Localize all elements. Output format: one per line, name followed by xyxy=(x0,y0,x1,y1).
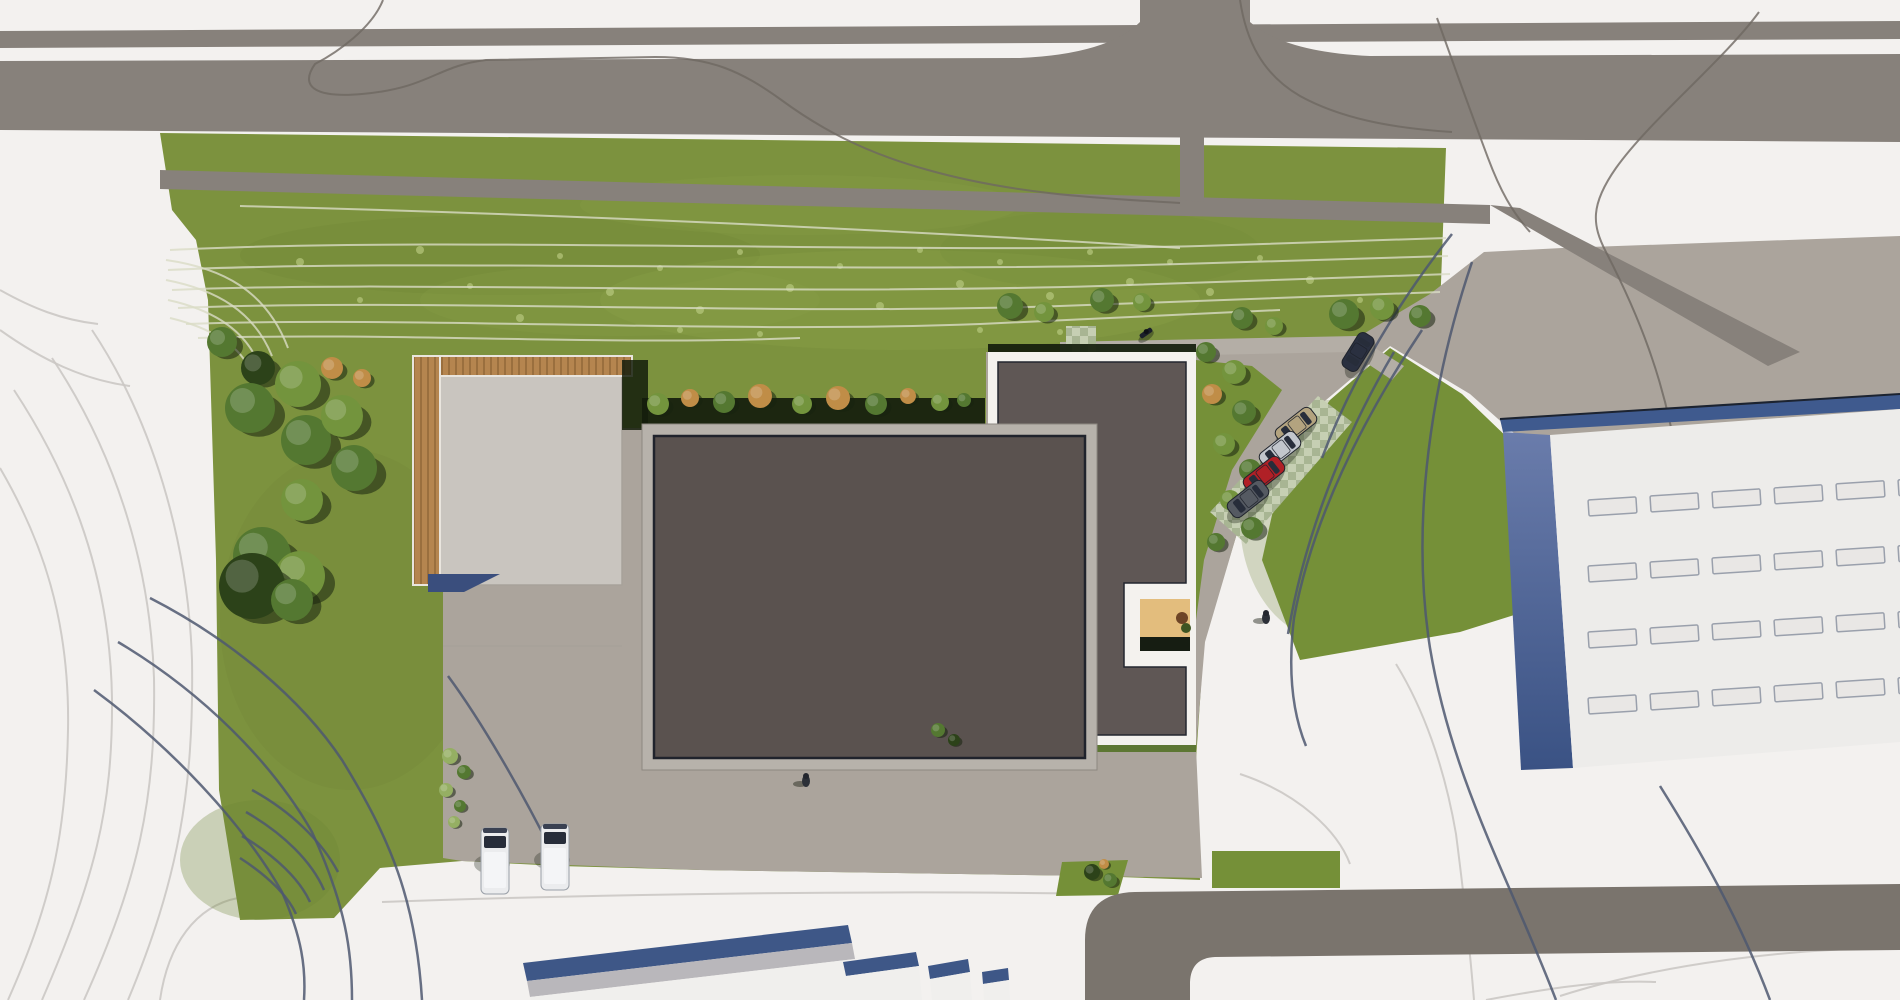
aerial-site-render xyxy=(0,0,1900,1000)
grass-patch-small-east xyxy=(1212,851,1340,888)
hedge-courtyard-east xyxy=(622,360,648,430)
meadow-speck xyxy=(977,327,983,333)
meadow-speck xyxy=(1046,292,1054,300)
tree-highlight xyxy=(455,801,461,807)
meadow-speck xyxy=(516,314,524,322)
tree-highlight xyxy=(932,724,939,731)
courtyard-slab xyxy=(440,376,622,585)
skylight xyxy=(1650,559,1699,578)
skylight xyxy=(1650,625,1699,644)
tree-highlight xyxy=(449,817,455,823)
tree-highlight xyxy=(1100,860,1105,865)
meadow-speck xyxy=(677,327,683,333)
tree-highlight xyxy=(226,560,259,593)
tree-highlight xyxy=(949,735,955,741)
tree-highlight xyxy=(958,394,965,401)
industrial-roof xyxy=(1550,409,1900,768)
notch-plant-leaf xyxy=(1181,623,1191,633)
meadow-speck xyxy=(416,246,424,254)
skylight xyxy=(1774,683,1823,702)
van-windshield xyxy=(484,836,506,848)
skylight xyxy=(1650,691,1699,710)
tree-highlight xyxy=(649,395,660,406)
meadow-speck xyxy=(557,253,563,259)
skylight xyxy=(1774,617,1823,636)
tree-highlight xyxy=(285,483,306,504)
tree-highlight xyxy=(1204,386,1214,396)
tree-highlight xyxy=(1104,874,1111,881)
meadow-speck xyxy=(786,284,794,292)
tree-highlight xyxy=(210,330,225,345)
tree-highlight xyxy=(715,393,726,404)
tree-highlight xyxy=(1036,304,1046,314)
skylight xyxy=(1836,481,1885,500)
meadow-speck xyxy=(997,259,1003,265)
main-roof xyxy=(654,436,1085,758)
tree-highlight xyxy=(440,784,447,791)
van-windshield xyxy=(544,832,566,844)
meadow-speck xyxy=(1306,276,1314,284)
skylight xyxy=(1588,497,1637,516)
skylight xyxy=(1588,695,1637,714)
skylight xyxy=(1836,547,1885,566)
meadow-speck xyxy=(757,331,763,337)
skylight xyxy=(1588,629,1637,648)
tree-highlight xyxy=(1092,290,1104,302)
render-viewport[interactable] xyxy=(0,0,1900,1000)
tree-highlight xyxy=(444,750,452,758)
tree-highlight xyxy=(1332,302,1347,317)
tree-highlight xyxy=(355,371,364,380)
tree-highlight xyxy=(1000,296,1013,309)
meadow-speck xyxy=(296,258,304,266)
tree-highlight xyxy=(1234,402,1246,414)
tree-highlight xyxy=(1209,535,1218,544)
person-head xyxy=(1263,610,1269,616)
grass-mottle xyxy=(180,800,340,920)
tree-highlight xyxy=(280,366,303,389)
road-access-stub xyxy=(1180,136,1204,202)
skylight xyxy=(1650,493,1699,512)
tree-highlight xyxy=(244,354,261,371)
tree-highlight xyxy=(1135,295,1144,304)
tree-highlight xyxy=(458,766,465,773)
tree-highlight xyxy=(1372,298,1384,310)
skylight xyxy=(1712,489,1761,508)
tree-highlight xyxy=(1267,319,1276,328)
tree-highlight xyxy=(275,583,296,604)
notch-plant xyxy=(1176,612,1188,624)
notch-deck-shadow xyxy=(1140,637,1190,651)
tree-highlight xyxy=(336,450,359,473)
timber-wall-north xyxy=(413,356,632,376)
tree-highlight xyxy=(750,386,762,398)
meadow-speck xyxy=(1057,329,1063,335)
tree-highlight xyxy=(1215,435,1226,446)
van-roof xyxy=(484,852,506,888)
tree-highlight xyxy=(933,395,942,404)
tree-highlight xyxy=(230,388,255,413)
industrial-building xyxy=(1500,394,1900,770)
tree-highlight xyxy=(1233,309,1244,320)
skylight xyxy=(1712,687,1761,706)
van-hood xyxy=(483,828,507,833)
tree-highlight xyxy=(828,388,840,400)
meadow-speck xyxy=(606,288,614,296)
tree-highlight xyxy=(683,391,692,400)
skylight xyxy=(1836,679,1885,698)
tree-highlight xyxy=(1241,461,1252,472)
meadow-speck xyxy=(1257,255,1263,261)
tree-highlight xyxy=(794,396,804,406)
tree-highlight xyxy=(286,420,311,445)
skylight xyxy=(1774,485,1823,504)
main-building xyxy=(642,424,1097,770)
van-roof xyxy=(544,848,566,884)
meadow-speck xyxy=(737,249,743,255)
timber-wall-west xyxy=(413,356,440,585)
tree-highlight xyxy=(325,399,346,420)
skylight xyxy=(1588,563,1637,582)
van-hood xyxy=(543,824,567,829)
person-head xyxy=(803,773,809,779)
meadow-speck xyxy=(956,280,964,288)
tree-highlight xyxy=(867,395,878,406)
skylight xyxy=(1712,555,1761,574)
skylight xyxy=(1836,613,1885,632)
tree-highlight xyxy=(1411,307,1422,318)
skylight xyxy=(1712,621,1761,640)
meadow-speck xyxy=(1357,297,1363,303)
tree-highlight xyxy=(1243,519,1254,530)
meadow-speck xyxy=(1206,288,1214,296)
meadow-speck xyxy=(1087,249,1093,255)
grass-mottle xyxy=(940,210,1260,290)
tree-highlight xyxy=(1086,866,1094,874)
skylight xyxy=(1774,551,1823,570)
tree-highlight xyxy=(1198,344,1208,354)
tree-highlight xyxy=(902,390,910,398)
meadow-speck xyxy=(357,297,363,303)
tree-highlight xyxy=(1224,362,1236,374)
tree-highlight xyxy=(323,359,334,370)
